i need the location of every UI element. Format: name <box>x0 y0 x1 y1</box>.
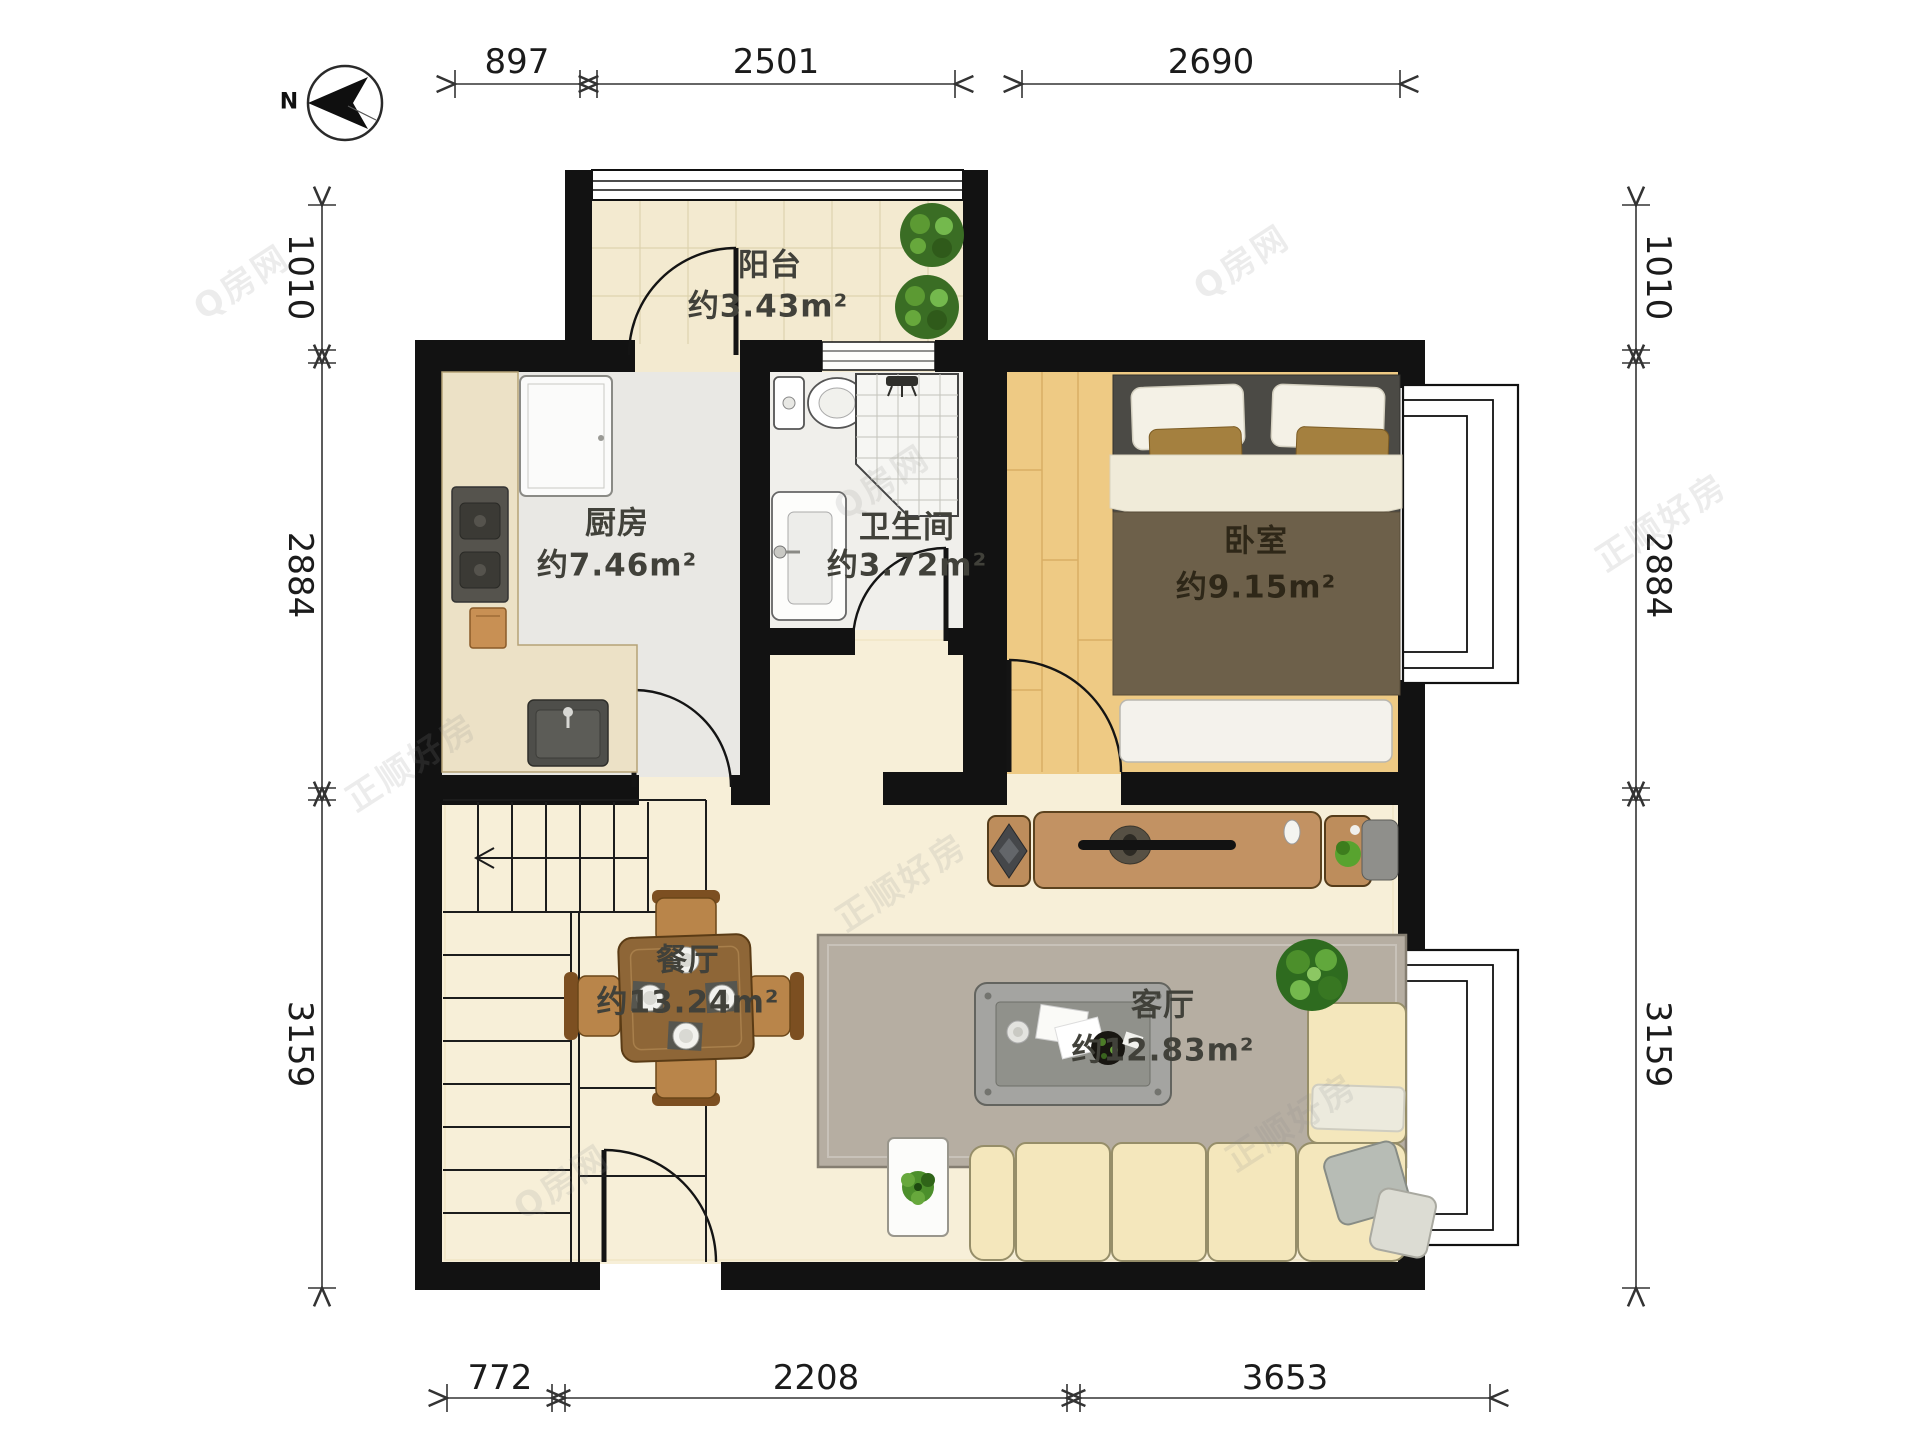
bed-duvet <box>1113 512 1400 695</box>
bathroom-sink <box>772 492 846 620</box>
floor-plant <box>1276 939 1348 1011</box>
sofa-pillow <box>1368 1187 1438 1260</box>
stove <box>452 487 508 602</box>
cutting-board <box>470 608 506 648</box>
living-room-furniture <box>818 935 1438 1261</box>
balcony-window <box>592 170 963 200</box>
speaker <box>988 816 1030 886</box>
bedroom-furniture <box>1110 375 1402 762</box>
bathroom-window <box>822 342 935 370</box>
tv-console-group <box>988 812 1398 888</box>
refrigerator <box>520 376 612 496</box>
bedroom-bay-window <box>1403 385 1518 683</box>
floor-plan-drawing <box>0 0 1920 1440</box>
sofa-throw <box>1311 1084 1404 1131</box>
tv-cabinet <box>1034 812 1321 888</box>
tv-screen <box>1078 840 1236 850</box>
kitchen-sink <box>528 700 608 766</box>
floor-plan-canvas: N 897 2501 2690 772 2208 3653 1010 2884 … <box>0 0 1920 1440</box>
plant-stand <box>888 1138 948 1236</box>
bed-bench <box>1120 700 1392 762</box>
side-stool <box>1362 820 1398 880</box>
toilet <box>774 377 866 429</box>
compass-icon <box>308 66 382 140</box>
coffee-table <box>975 983 1171 1105</box>
